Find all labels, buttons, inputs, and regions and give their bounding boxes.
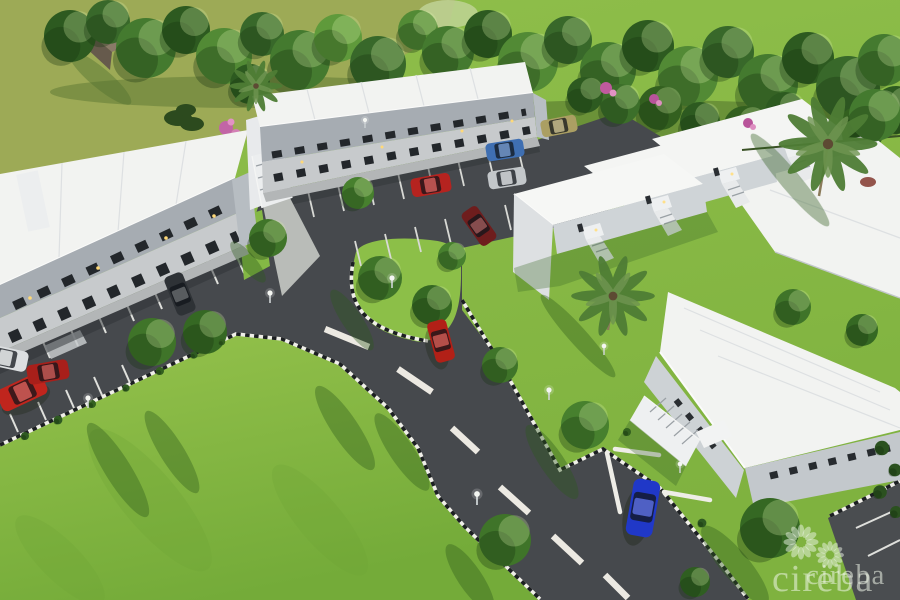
aerial-render-image: cireba cireba — [0, 0, 900, 600]
red-plant — [860, 177, 876, 187]
watermark-text-small: cireba — [806, 559, 886, 591]
render-scene: cireba cireba — [0, 0, 900, 600]
